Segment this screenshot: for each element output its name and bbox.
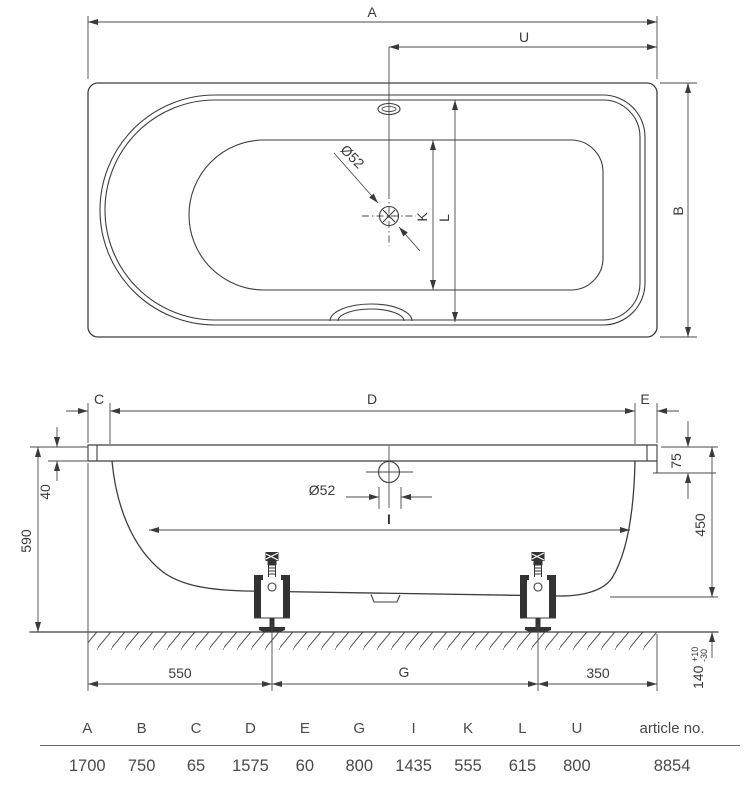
adjustable-foot-left bbox=[254, 552, 290, 632]
dimension-i: I bbox=[149, 511, 630, 530]
dimension-75: 75 bbox=[653, 421, 718, 499]
table-header: C bbox=[169, 720, 223, 737]
table-header-article-no: article no. bbox=[604, 720, 740, 737]
dimension-b: B bbox=[660, 83, 697, 337]
dimension-140: 140 +10 -30 bbox=[690, 632, 712, 689]
table-header: D bbox=[223, 720, 277, 737]
table-value: 65 bbox=[169, 757, 223, 776]
drain-diameter-label-side: Ø52 bbox=[309, 482, 336, 498]
table-header: B bbox=[114, 720, 168, 737]
dimension-table: A B C D E G I K L U article no. 1700 750… bbox=[40, 720, 740, 776]
table-header: E bbox=[278, 720, 332, 737]
dim-label-i: I bbox=[387, 511, 391, 527]
dimension-590: 590 bbox=[18, 447, 38, 632]
dim-label-c: C bbox=[94, 391, 104, 407]
dim-label-u: U bbox=[519, 29, 529, 45]
table-value: 1435 bbox=[386, 757, 440, 776]
waste-fitting bbox=[371, 595, 400, 603]
dim-label-g: G bbox=[399, 664, 410, 680]
table-value: 1575 bbox=[223, 757, 277, 776]
dim-label-a: A bbox=[367, 4, 377, 20]
dim-label-40: 40 bbox=[37, 484, 53, 500]
dim-label-350: 350 bbox=[586, 665, 610, 681]
dim-label-b: B bbox=[670, 206, 686, 215]
table-value: 800 bbox=[332, 757, 386, 776]
table-header: L bbox=[495, 720, 549, 737]
drain-top-view: Ø52 bbox=[334, 141, 420, 251]
grip-recess bbox=[330, 304, 412, 321]
dim-label-450: 450 bbox=[692, 513, 708, 537]
table-header: I bbox=[386, 720, 440, 737]
dim-label-140: 140 bbox=[690, 665, 706, 689]
tub-rim-inner bbox=[105, 100, 640, 320]
dim-label-140-tol-minus: -30 bbox=[699, 649, 709, 662]
side-view: C D E Ø52 bbox=[18, 391, 718, 691]
table-value: 60 bbox=[278, 757, 332, 776]
table-value: 800 bbox=[550, 757, 604, 776]
table-header: U bbox=[550, 720, 604, 737]
floor bbox=[30, 632, 718, 650]
table-value: 1700 bbox=[60, 757, 114, 776]
dim-label-75: 75 bbox=[668, 453, 684, 469]
tub-outer-edge bbox=[88, 83, 657, 337]
adjustable-foot-right bbox=[520, 552, 556, 632]
technical-drawing: A U B bbox=[0, 0, 749, 710]
tub-basin bbox=[189, 140, 603, 290]
dim-label-k: K bbox=[414, 212, 430, 222]
table-value: 615 bbox=[495, 757, 549, 776]
table-header: G bbox=[332, 720, 386, 737]
table-header: A bbox=[60, 720, 114, 737]
floor-hatching bbox=[88, 633, 657, 650]
dimension-a: A bbox=[88, 4, 657, 79]
table-header-row: A B C D E G I K L U article no. bbox=[40, 720, 740, 746]
dimension-40: 40 bbox=[30, 427, 88, 500]
dimension-k: K bbox=[414, 140, 433, 290]
tub-section-outline bbox=[112, 461, 635, 602]
dim-label-590: 590 bbox=[18, 529, 34, 553]
table-value-article-no: 8854 bbox=[604, 757, 740, 776]
drain-diameter-label: Ø52 bbox=[338, 141, 368, 171]
dim-label-d: D bbox=[367, 391, 377, 407]
table-header: K bbox=[441, 720, 495, 737]
table-value: 555 bbox=[441, 757, 495, 776]
dimension-450: 450 bbox=[610, 447, 718, 597]
dimension-u: U bbox=[389, 29, 657, 192]
table-value-row: 1700 750 65 1575 60 800 1435 555 615 800… bbox=[40, 746, 740, 776]
table-value: 750 bbox=[114, 757, 168, 776]
dim-label-550: 550 bbox=[168, 665, 192, 681]
dimension-l: L bbox=[436, 100, 455, 322]
dim-label-l: L bbox=[436, 214, 452, 222]
top-view: A U B bbox=[88, 4, 697, 337]
dimension-cde: C D E bbox=[66, 391, 679, 444]
drain-side-view: Ø52 bbox=[309, 446, 432, 509]
dim-label-e: E bbox=[640, 391, 649, 407]
bathtub-dimension-drawing: A U B bbox=[0, 0, 749, 800]
rim-profile bbox=[88, 445, 657, 473]
